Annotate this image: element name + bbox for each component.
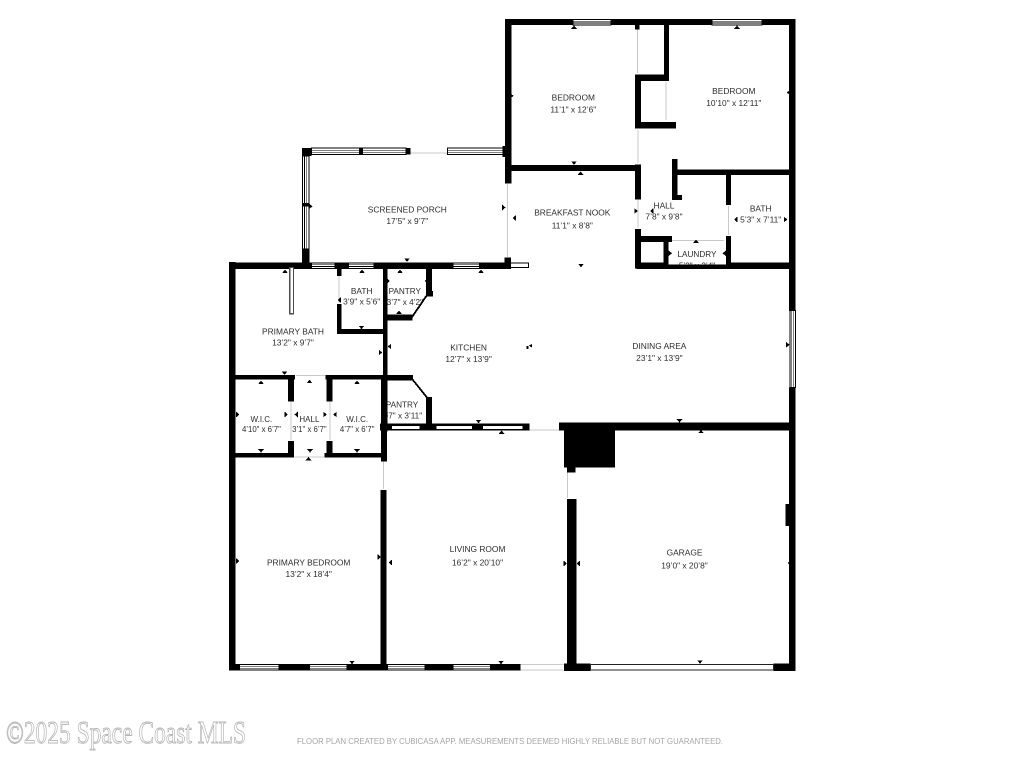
svg-text:13’2" x 9’7": 13’2" x 9’7" <box>272 338 314 348</box>
svg-text:BEDROOM: BEDROOM <box>712 86 755 96</box>
svg-text:5’3" x 7’11": 5’3" x 7’11" <box>740 215 781 225</box>
svg-text:BEDROOM: BEDROOM <box>552 92 595 102</box>
svg-text:HALL: HALL <box>654 200 675 210</box>
svg-text:SCREENED PORCH: SCREENED PORCH <box>368 204 447 214</box>
svg-text:4’10" x 6’7": 4’10" x 6’7" <box>242 425 281 434</box>
svg-text:LAUNDRY: LAUNDRY <box>678 250 718 259</box>
svg-text:19’0" x 20’8": 19’0" x 20’8" <box>661 561 707 571</box>
svg-text:4’7" x 6’7": 4’7" x 6’7" <box>340 425 375 434</box>
svg-text:BREAKFAST NOOK: BREAKFAST NOOK <box>534 208 611 218</box>
svg-text:7’8" x 9’8": 7’8" x 9’8" <box>645 212 682 222</box>
svg-text:FLOOR PLAN CREATED BY CUBICASA: FLOOR PLAN CREATED BY CUBICASA APP. MEAS… <box>297 736 723 746</box>
svg-text:PRIMARY BATH: PRIMARY BATH <box>262 326 324 336</box>
svg-text:©2025 Space Coast MLS: ©2025 Space Coast MLS <box>6 714 246 750</box>
svg-text:3’1" x 6’7": 3’1" x 6’7" <box>292 425 327 434</box>
svg-text:10’10" x 12’11": 10’10" x 12’11" <box>706 98 761 108</box>
svg-text:W.I.C.: W.I.C. <box>346 415 368 424</box>
svg-text:PANTRY: PANTRY <box>389 287 422 296</box>
svg-text:16’2" x 20’10": 16’2" x 20’10" <box>452 557 503 567</box>
svg-text:DINING AREA: DINING AREA <box>632 341 686 351</box>
svg-text:3’9" x 5’6": 3’9" x 5’6" <box>343 296 380 306</box>
svg-text:PRIMARY BEDROOM: PRIMARY BEDROOM <box>267 558 350 568</box>
svg-text:BATH: BATH <box>750 203 772 213</box>
svg-text:17’5" x 9’7": 17’5" x 9’7" <box>386 216 428 226</box>
svg-text:W.I.C.: W.I.C. <box>251 415 273 424</box>
svg-text:HALL: HALL <box>299 415 320 424</box>
svg-text:13’2" x 18’4": 13’2" x 18’4" <box>285 569 331 579</box>
svg-text:BATH: BATH <box>351 286 373 296</box>
svg-text:3’7" x 4’2": 3’7" x 4’2" <box>387 298 423 307</box>
svg-text:GARAGE: GARAGE <box>667 548 703 558</box>
svg-text:12’7" x 13’9": 12’7" x 13’9" <box>445 354 491 364</box>
svg-text:11’1" x 12’6": 11’1" x 12’6" <box>550 105 596 115</box>
svg-text:KITCHEN: KITCHEN <box>450 342 487 352</box>
svg-text:PANTRY: PANTRY <box>386 401 419 410</box>
svg-text:23’1" x 13’9": 23’1" x 13’9" <box>636 353 682 363</box>
svg-text:LIVING ROOM: LIVING ROOM <box>450 544 506 554</box>
svg-text:11’1" x 8’8": 11’1" x 8’8" <box>552 221 593 231</box>
